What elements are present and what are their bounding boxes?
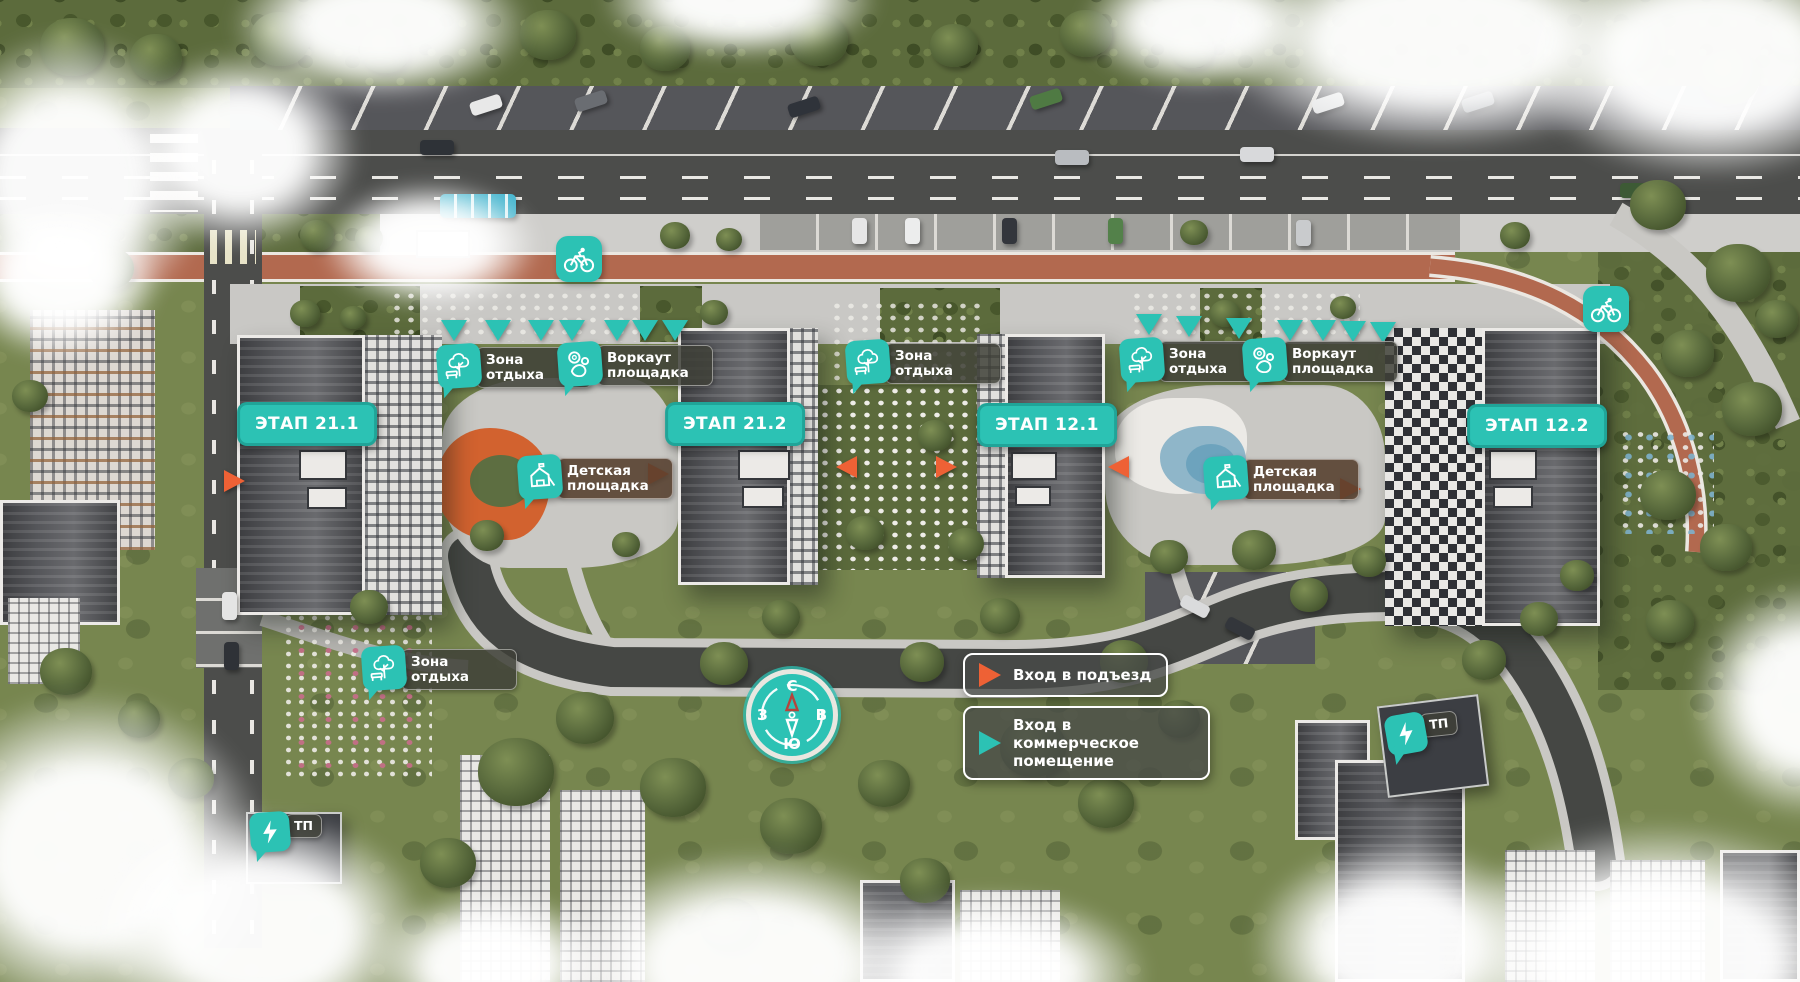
amenity-label: Зона отдыха [401,649,517,690]
parking-strip-below-road [760,214,1460,250]
amenity-marker-workout-2[interactable]: Воркаут площадка [1243,338,1398,382]
bicycle-icon[interactable] [556,236,602,282]
tree-bench-icon [436,343,483,390]
main-road [0,128,1800,214]
bus-stop-shelter [416,230,470,258]
amenity-label: Детская площадка [557,458,673,499]
amenity-marker-playground-2[interactable]: Детская площадка [1204,456,1359,500]
stage-label-21-1[interactable]: ЭТАП 21.1 [237,402,377,446]
tree-bench-icon [1119,337,1166,384]
compass-east: В [816,706,827,724]
playhouse-icon [517,454,564,501]
building-south-3 [860,880,955,982]
parking-pocket-right [1145,572,1315,664]
compass: С В Ю З [746,669,838,761]
amenity-label: Воркаут площадка [1282,341,1398,382]
residential-entrance-marker-icon [979,663,1001,687]
stage-label-12-2[interactable]: ЭТАП 12.2 [1467,404,1607,448]
legend-item-residential: Вход в подъезд [963,653,1168,697]
building-south-9 [1720,850,1800,982]
building-south-2 [560,790,645,982]
utility-label: ТП [285,814,322,838]
courtyard-garden-center [818,385,978,570]
workout-icon [1242,337,1289,384]
amenity-label: Детская площадка [1243,459,1359,500]
masterplan-scene: ЭТАП 21.1 ЭТАП 21.2 ЭТАП 12.1 ЭТАП 12.2 … [0,0,1800,982]
legend-label: Вход в подъезд [1013,666,1152,684]
road-edge-line [0,154,1800,156]
legend-label: Вход в коммерческое помещение [1013,716,1194,770]
road-center-dashes [0,176,1800,179]
building-neighbor-small [8,598,80,684]
building-south-4 [960,890,1060,982]
side-street-dashes-left [212,160,216,940]
amenity-marker-rest-2[interactable]: Зона отдыха [846,340,1001,384]
stage-label-21-2[interactable]: ЭТАП 21.2 [665,402,805,446]
utility-marker-tp-2[interactable]: ТП [1384,708,1460,755]
compass-north: С [786,677,797,695]
tree-bench-icon [361,645,408,692]
building-neighbor-west [0,305,160,625]
median-hedge-left [0,214,380,254]
tree-bench-icon [845,339,892,386]
legend: Вход в подъезд Вход в коммерческое помещ… [963,653,1210,780]
bus [440,194,516,218]
crosswalk-main [150,134,198,212]
amenity-marker-workout-1[interactable]: Воркаут площадка [558,342,713,386]
road-lane-dashes [0,197,1800,200]
amenity-marker-rest-4[interactable]: Зона отдыха [362,646,517,690]
parking-strip-top [230,86,1800,130]
building-stage-21-1[interactable] [237,335,442,615]
building-south-1 [460,755,550,982]
lightning-icon [249,811,292,854]
bicycle-icon[interactable] [1583,286,1629,332]
planter-grid [1130,290,1360,342]
east-playground-dots [1618,428,1714,534]
stage-label-12-1[interactable]: ЭТАП 12.1 [977,403,1117,447]
legend-item-commercial: Вход в коммерческое помещение [963,706,1210,780]
compass-west: З [757,706,768,724]
building-south-7 [1505,850,1595,982]
playhouse-icon [1203,455,1250,502]
forest-band-top [0,0,1800,88]
lightning-icon [1383,711,1429,757]
amenity-label: Зона отдыха [885,343,1001,384]
crosswalk-side [210,230,256,264]
building-stage-12-2[interactable] [1385,328,1600,626]
utility-marker-tp-1[interactable]: ТП [250,812,322,852]
amenity-marker-playground-1[interactable]: Детская площадка [518,455,673,499]
building-south-8 [1610,860,1705,982]
compass-south: Ю [783,735,801,753]
commercial-entrance-marker-icon [979,731,1001,755]
workout-icon [557,341,604,388]
amenity-label: Воркаут площадка [597,345,713,386]
flower-garden [282,612,432,780]
